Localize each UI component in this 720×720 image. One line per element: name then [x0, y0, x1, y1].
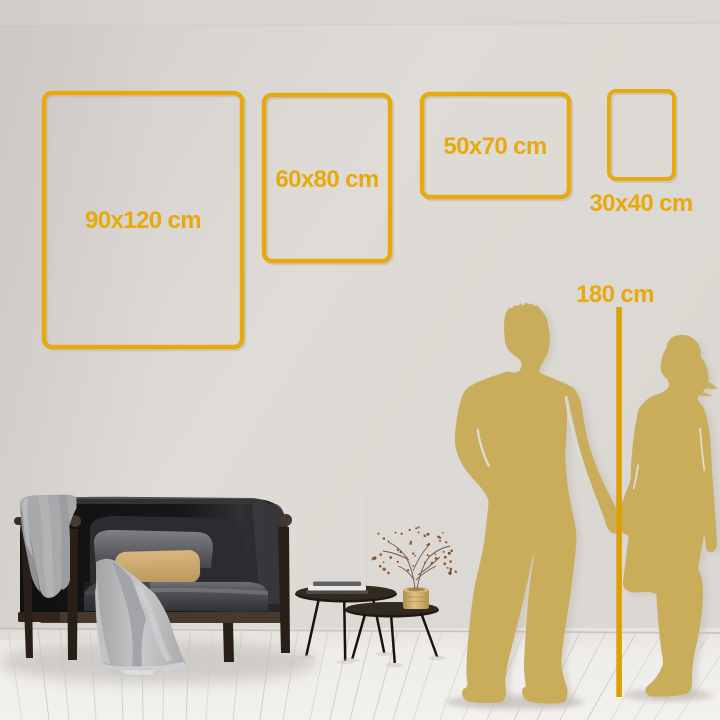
- svg-text:50x70 cm: 50x70 cm: [443, 133, 546, 160]
- svg-text:60x80 cm: 60x80 cm: [275, 166, 378, 193]
- svg-text:180 cm: 180 cm: [576, 281, 654, 308]
- svg-text:90x120 cm: 90x120 cm: [85, 207, 201, 234]
- svg-text:30x40 cm: 30x40 cm: [589, 190, 692, 217]
